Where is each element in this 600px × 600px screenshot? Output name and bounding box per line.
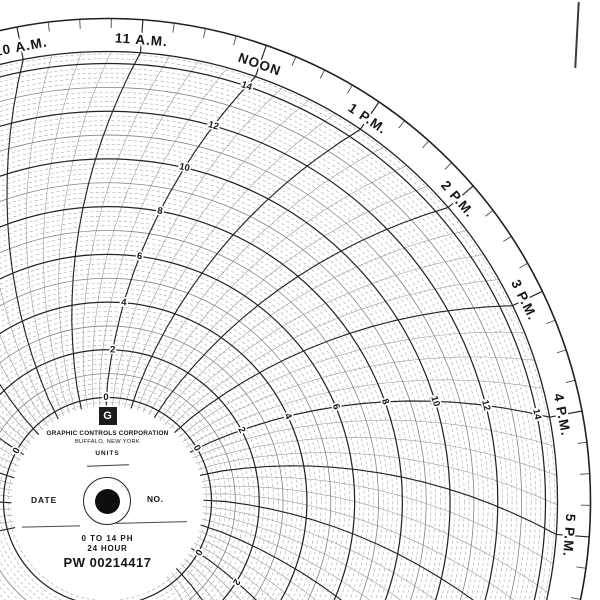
rim-hour-label: 5 P.M. <box>560 513 578 557</box>
date-label: DATE <box>31 495 57 505</box>
scale-number-label: 12 <box>479 399 492 412</box>
part-number: PW 00214417 <box>12 555 203 570</box>
rim-hour-label: 10 A.M. <box>0 34 49 59</box>
scale-number-label: 10 <box>428 395 442 408</box>
scale-number-label: 2 <box>110 344 116 355</box>
rotation-text: 24 HOUR <box>12 544 203 553</box>
units-label: UNITS <box>12 450 203 457</box>
scale-number-label: 8 <box>379 397 391 406</box>
rim-hour-label: 4 P.M. <box>551 392 574 437</box>
graphic-controls-logo: G <box>99 407 117 425</box>
units-write-line <box>86 464 128 466</box>
date-write-line <box>22 525 80 527</box>
number-label: NO. <box>147 494 163 504</box>
scale-number-label: 2 <box>235 425 247 435</box>
scale-number-label: 6 <box>136 251 143 263</box>
scale-number-label: 12 <box>207 119 220 132</box>
scale-range-text: 0 TO 14 PH <box>12 534 203 543</box>
chart-paper: 10 A.M.11 A.M.NOON1 P.M.2 P.M.3 P.M.4 P.… <box>0 0 600 600</box>
rim-hour-label: 3 P.M. <box>508 277 540 322</box>
rim-hour-label: NOON <box>236 50 283 79</box>
number-write-line <box>116 521 187 524</box>
company-city: BUFFALO, NEW YORK <box>12 439 203 445</box>
scale-number-label: 4 <box>282 412 295 422</box>
company-name: GRAPHIC CONTROLS CORPORATION <box>12 430 203 437</box>
rim-hour-label: 11 A.M. <box>114 30 168 49</box>
spindle-hole <box>95 489 120 514</box>
scale-number-label: 8 <box>156 205 163 217</box>
scale-number-label: 6 <box>330 402 342 411</box>
scale-number-label: 14 <box>530 408 543 421</box>
scale-number-label: 10 <box>178 161 191 174</box>
scale-number-label: 0 <box>103 392 108 403</box>
hub-center-label: G GRAPHIC CONTROLS CORPORATION BUFFALO, … <box>12 406 203 597</box>
